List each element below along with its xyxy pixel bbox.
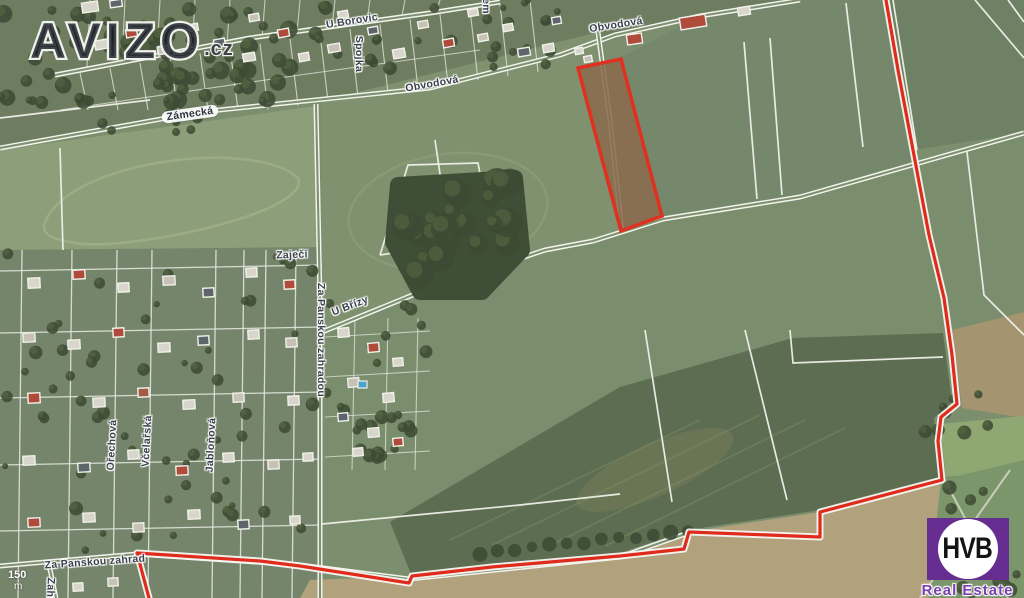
house <box>110 0 123 8</box>
satellite-map-canvas[interactable]: AVIZO.cz <box>0 0 1024 598</box>
scale-distance: 150 <box>8 569 26 581</box>
house <box>551 16 561 24</box>
house <box>246 268 257 278</box>
house <box>477 33 488 42</box>
tree-highlight <box>214 437 218 441</box>
house <box>393 358 404 367</box>
tree <box>647 529 660 542</box>
tree-highlight <box>187 126 192 131</box>
tree-highlight <box>920 426 927 433</box>
scale-unit: m <box>14 581 26 593</box>
map-scale: 150 m <box>8 569 26 593</box>
house <box>626 33 642 45</box>
house <box>73 583 83 592</box>
tree-highlight <box>215 28 220 33</box>
tree-highlight <box>400 301 406 307</box>
tree-highlight <box>172 128 176 132</box>
tree-highlight <box>500 5 504 9</box>
house <box>68 340 80 350</box>
house <box>517 47 530 57</box>
tree-highlight <box>108 127 113 132</box>
house <box>575 47 584 54</box>
tree-highlight <box>488 52 494 58</box>
tree-highlight <box>394 214 409 229</box>
tree-highlight <box>229 503 233 507</box>
tree-highlight <box>48 6 53 11</box>
tree-highlight <box>490 63 495 68</box>
tree-highlight <box>183 460 187 464</box>
house <box>223 453 234 463</box>
house <box>277 28 289 38</box>
house <box>337 10 348 19</box>
house <box>442 38 454 48</box>
house <box>176 466 188 476</box>
house <box>133 523 144 533</box>
house <box>284 280 295 290</box>
tree-highlight <box>373 35 378 40</box>
hvb-logo-abbr: HVB <box>943 534 992 564</box>
tree-highlight <box>182 481 188 487</box>
tree-highlight <box>95 278 101 284</box>
tree-highlight <box>230 68 239 77</box>
tree-highlight <box>141 315 146 320</box>
tree-highlight <box>273 54 281 62</box>
tree-highlight <box>241 409 248 416</box>
tree <box>561 538 573 550</box>
tree-highlight <box>223 477 227 481</box>
tree <box>595 533 608 546</box>
house <box>367 26 378 35</box>
house <box>163 276 175 286</box>
house <box>368 428 380 438</box>
tree-highlight <box>98 119 104 125</box>
tree-highlight <box>430 4 435 9</box>
house <box>233 393 244 403</box>
tree-highlight <box>958 426 966 434</box>
tree-highlight <box>483 190 493 200</box>
tree-highlight <box>381 332 386 337</box>
tree-highlight <box>138 364 145 371</box>
tree-highlight <box>70 502 78 510</box>
house <box>81 1 98 13</box>
tree-highlight <box>307 266 314 273</box>
tree-highlight <box>975 391 980 396</box>
tree-highlight <box>199 90 206 97</box>
house <box>467 8 478 17</box>
tree-highlight <box>22 368 26 372</box>
tree-highlight <box>234 85 239 90</box>
tree-highlight <box>56 78 65 87</box>
house <box>288 396 299 406</box>
tree-highlight <box>241 80 250 89</box>
house <box>290 516 300 525</box>
tree-highlight <box>493 171 509 187</box>
tree-highlight <box>92 412 98 418</box>
swimming-pool <box>358 381 367 388</box>
house <box>303 453 313 462</box>
tree-highlight <box>188 449 195 456</box>
house <box>393 438 404 447</box>
tree-highlight <box>227 509 234 516</box>
tree-highlight <box>178 84 185 91</box>
house <box>23 333 35 343</box>
house <box>93 398 105 408</box>
tree-highlight <box>406 262 422 278</box>
tree-highlight <box>47 323 54 330</box>
hvb-logo: HVB Real Estate <box>915 518 1020 598</box>
tree-highlight <box>87 357 93 363</box>
house <box>368 343 380 353</box>
tree-highlight <box>483 15 489 21</box>
house <box>198 336 209 346</box>
tree-highlight <box>270 34 275 39</box>
house <box>128 450 139 460</box>
house <box>248 330 259 340</box>
tree-highlight <box>193 113 199 119</box>
tree-highlight <box>2 392 8 398</box>
field-polygon <box>952 312 1024 418</box>
house <box>584 55 593 62</box>
avizo-watermark: AVIZO.cz <box>30 13 234 69</box>
tree-highlight <box>162 457 167 462</box>
tree <box>630 532 642 544</box>
tree-highlight <box>280 422 287 429</box>
house <box>338 413 349 422</box>
tree-highlight <box>215 95 221 101</box>
tree-highlight <box>165 496 169 500</box>
tree-highlight <box>237 431 243 437</box>
hvb-logo-caption: Real Estate <box>915 582 1020 598</box>
house <box>108 578 118 587</box>
tree-highlight <box>121 433 125 437</box>
tree-highlight <box>183 3 191 11</box>
tree-highlight <box>387 413 393 419</box>
tree <box>577 537 590 550</box>
hvb-logo-square: HVB <box>927 518 1009 580</box>
tree-highlight <box>213 375 219 381</box>
tree-highlight <box>191 362 198 369</box>
house <box>83 513 95 523</box>
tree-highlight <box>433 216 449 232</box>
tree-highlight <box>509 48 513 52</box>
tree-highlight <box>206 68 212 74</box>
tree-highlight <box>49 385 54 390</box>
house <box>338 328 350 338</box>
house <box>417 20 428 29</box>
tree-highlight <box>554 8 558 12</box>
tree-highlight <box>154 301 157 304</box>
tree-highlight <box>966 495 972 501</box>
tree-highlight <box>363 449 371 457</box>
house <box>298 52 309 62</box>
tree-highlight <box>946 504 952 510</box>
house <box>183 400 195 410</box>
house <box>502 23 513 32</box>
tree-highlight <box>211 492 218 499</box>
house <box>78 463 90 473</box>
tree-highlight <box>469 236 480 247</box>
hvb-logo-circle: HVB <box>938 519 998 579</box>
tree-highlight <box>244 7 249 12</box>
house <box>188 510 200 520</box>
tree-highlight <box>43 69 50 76</box>
tree-highlight <box>292 331 296 335</box>
house <box>28 393 41 404</box>
tree-highlight <box>444 204 454 214</box>
tree-highlight <box>213 63 223 73</box>
tree-highlight <box>75 94 81 100</box>
avizo-watermark-suffix: .cz <box>204 38 234 60</box>
tree-highlight <box>983 421 989 427</box>
tree-highlight <box>273 253 277 257</box>
tree-highlight <box>165 109 171 115</box>
house <box>248 13 259 22</box>
house <box>158 343 170 353</box>
house <box>23 456 35 466</box>
tree-highlight <box>205 347 209 351</box>
tree <box>542 537 556 551</box>
tree-highlight <box>21 76 27 82</box>
tree-highlight <box>979 487 984 492</box>
house <box>28 278 41 289</box>
tree-highlight <box>100 531 104 535</box>
house <box>113 328 124 338</box>
tree-highlight <box>271 75 280 84</box>
tree <box>473 547 488 562</box>
tree-highlight <box>30 346 37 353</box>
tree <box>491 544 504 557</box>
tree-highlight <box>164 97 168 101</box>
tree-highlight <box>315 35 320 40</box>
house <box>73 270 85 280</box>
tree-highlight <box>420 346 427 353</box>
tree-highlight <box>415 38 419 42</box>
tree-highlight <box>384 62 392 70</box>
house <box>737 6 750 16</box>
tree <box>663 525 678 540</box>
tree <box>613 532 624 543</box>
tree-highlight <box>337 403 341 407</box>
house <box>242 52 255 62</box>
map-viewport[interactable]: AVIZO.cz U BorovicSpojkaObvodováObvodová… <box>0 0 1024 598</box>
tree-highlight <box>172 118 177 123</box>
tree-highlight <box>82 547 86 551</box>
tree-highlight <box>444 180 460 196</box>
tree-highlight <box>154 78 161 85</box>
tree-highlight <box>939 403 944 408</box>
tree-highlight <box>366 54 372 60</box>
tree-highlight <box>376 411 384 419</box>
tree-highlight <box>306 398 314 406</box>
tree-highlight <box>109 92 113 96</box>
tree-highlight <box>66 372 71 377</box>
field-polygon <box>0 247 322 598</box>
tree-highlight <box>406 304 413 311</box>
tree-highlight <box>398 423 404 429</box>
tree-highlight <box>319 2 327 10</box>
tree-highlight <box>241 297 246 302</box>
tree-highlight <box>285 258 292 265</box>
tree-highlight <box>3 464 6 467</box>
tree-highlight <box>170 532 174 536</box>
tree-highlight <box>373 359 378 364</box>
tree-highlight <box>297 524 302 529</box>
tree-highlight <box>182 360 186 364</box>
tree-highlight <box>26 97 30 101</box>
house <box>392 48 405 59</box>
tree-highlight <box>541 16 547 22</box>
house <box>542 43 554 53</box>
tree <box>508 544 521 557</box>
tree-highlight <box>175 70 185 80</box>
tree-highlight <box>280 258 283 261</box>
tree-highlight <box>241 39 251 49</box>
house <box>268 460 279 470</box>
tree-highlight <box>38 412 43 417</box>
tree-highlight <box>259 98 264 103</box>
house <box>118 283 129 293</box>
house <box>28 518 40 528</box>
tree-highlight <box>428 246 443 261</box>
house <box>138 388 149 398</box>
tree-highlight <box>541 60 547 66</box>
tree-highlight <box>491 42 497 48</box>
tree-highlight <box>228 11 234 17</box>
tree-highlight <box>503 18 509 24</box>
tree-highlight <box>417 321 422 326</box>
house <box>327 43 340 53</box>
tree-highlight <box>309 27 317 35</box>
tree-highlight <box>356 419 363 426</box>
tree-highlight <box>76 396 82 402</box>
tree-highlight <box>36 97 43 104</box>
tree-highlight <box>487 216 496 225</box>
tree-highlight <box>3 249 9 255</box>
tree-highlight <box>210 437 214 441</box>
house <box>238 520 249 530</box>
house <box>286 338 297 348</box>
tree-highlight <box>326 299 331 304</box>
house <box>383 393 395 403</box>
tree-highlight <box>259 506 266 513</box>
tree-highlight <box>259 22 264 27</box>
tree-highlight <box>163 270 169 276</box>
tree <box>527 542 537 552</box>
tree-highlight <box>58 345 64 351</box>
house <box>203 288 214 298</box>
tree-highlight <box>322 388 327 393</box>
house <box>353 448 364 457</box>
